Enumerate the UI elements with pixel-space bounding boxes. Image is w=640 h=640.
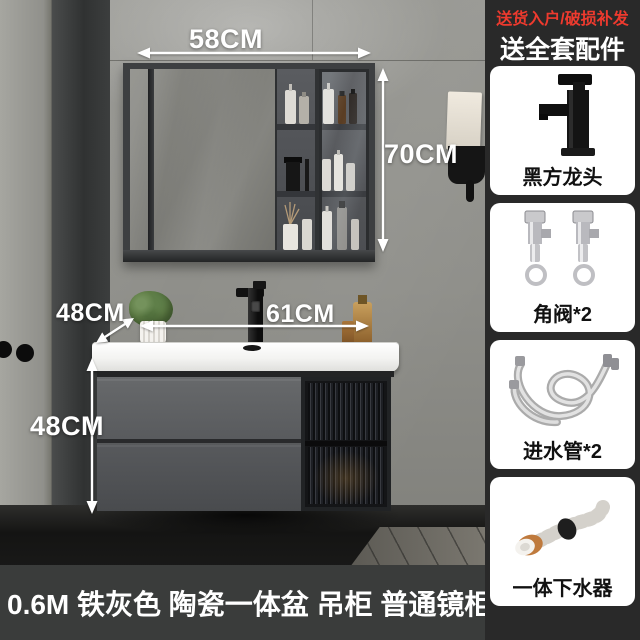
mirror-cabinet-base	[123, 250, 375, 262]
wall-grout-line	[110, 60, 485, 61]
black-faucet-icon	[490, 66, 635, 166]
accessory-card-drain: 一体下水器	[490, 477, 635, 606]
dimension-label-basin-width: 61CM	[266, 300, 335, 329]
glass-cabinet-divider	[305, 441, 387, 446]
ribbed-glass-panel	[308, 447, 384, 504]
ribbed-glass-panel	[308, 383, 384, 440]
sidebar-promo-line: 送货入户/破损补发	[485, 5, 640, 29]
caption-bar: 0.6M 铁灰色 陶瓷一体盆 吊柜 普通镜柜	[0, 565, 485, 640]
basin-overflow-hole	[243, 345, 261, 351]
drawer-edge-highlight	[97, 445, 301, 447]
dimension-label-cabinet-height: 48CM	[30, 411, 104, 442]
drawer-edge-highlight	[97, 379, 301, 381]
accessories-sidebar: 送货入户/破损补发 送全套配件 黑方龙头	[485, 0, 640, 640]
vanity-drawers	[97, 377, 301, 511]
wall-grout-line	[312, 0, 313, 60]
faucet-handle	[253, 281, 266, 289]
product-caption: 0.6M 铁灰色 陶瓷一体盆 吊柜 普通镜柜	[0, 583, 485, 623]
faucet-detail	[251, 301, 260, 312]
product-listing-image: 58CM 70CM 48CM 61CM 48CM 0.6M 铁灰色 陶瓷一体盆 …	[0, 0, 640, 640]
inlet-hoses-icon	[490, 340, 635, 440]
accessory-card-inlet-hoses: 进水管*2	[490, 340, 635, 469]
wall-tile-left	[0, 0, 52, 535]
drawer-divider	[97, 439, 301, 443]
ribbed-glass-cabinet	[301, 377, 391, 511]
accessory-card-faucet: 黑方龙头	[490, 66, 635, 195]
drain-pipe-icon	[490, 477, 635, 577]
sidebar-title: 送全套配件	[485, 30, 640, 66]
black-faucet	[248, 288, 263, 345]
accessory-card-angle-valves: 角阀*2	[490, 203, 635, 332]
wall-valve-knob	[16, 344, 34, 362]
accessory-label: 黑方龙头	[523, 166, 603, 190]
soap-bottle	[353, 302, 372, 345]
accessory-label: 角阀*2	[533, 303, 592, 327]
accessory-label: 进水管*2	[523, 440, 602, 464]
dimension-label-mirror-height: 70CM	[384, 139, 458, 170]
tissue-holder-hook	[466, 180, 474, 202]
accessory-label: 一体下水器	[513, 577, 613, 601]
mirror-door-groove	[148, 69, 154, 256]
angle-valves-icon	[490, 203, 635, 303]
soap-bottle-cap	[358, 295, 367, 304]
shelf-glass-door	[319, 69, 369, 256]
dimension-label-mirror-width: 58CM	[189, 24, 263, 55]
dimension-label-counter-depth: 48CM	[56, 299, 125, 328]
bathroom-photo: 58CM 70CM 48CM 61CM 48CM 0.6M 铁灰色 陶瓷一体盆 …	[0, 0, 485, 640]
